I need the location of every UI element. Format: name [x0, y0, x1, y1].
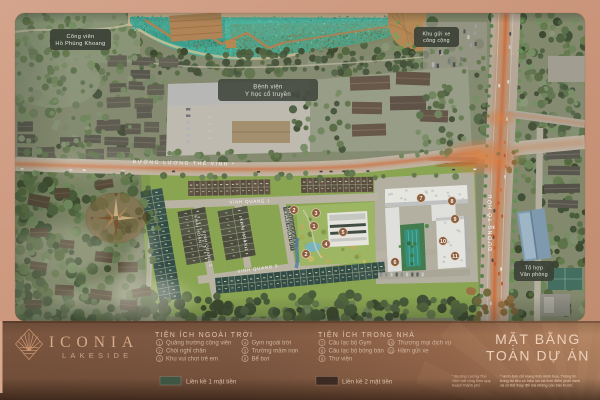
svg-text:Khu vui chơi trẻ em: Khu vui chơi trẻ em — [166, 357, 218, 363]
svg-text:hoạch thành phố: hoạch thành phố — [452, 383, 481, 387]
svg-text:TIỆN ÍCH TRONG NHÀ: TIỆN ÍCH TRONG NHÀ — [318, 330, 415, 339]
svg-text:và có thể thay đổi mà không cầ: và có thể thay đổi mà không cần báo trướ… — [500, 383, 573, 387]
svg-text:Câu lạc bộ bóng bàn: Câu lạc bộ bóng bàn — [329, 349, 384, 355]
svg-text:Trường mầm non: Trường mầm non — [252, 349, 299, 355]
svg-text:TOÀN DỰ ÁN: TOÀN DỰ ÁN — [486, 348, 590, 364]
svg-text:* Đường Lương Thế: * Đường Lương Thế — [452, 375, 487, 379]
svg-text:Liền kề 2 mặt tiền: Liền kề 2 mặt tiền — [342, 377, 393, 386]
svg-text:Liền kề 1 mặt tiền: Liền kề 1 mặt tiền — [186, 377, 237, 386]
svg-text:Vinh mở rộng theo quy: Vinh mở rộng theo quy — [452, 379, 491, 383]
svg-text:Thư viện: Thư viện — [329, 357, 353, 363]
svg-text:Gym ngoài trời: Gym ngoài trời — [252, 341, 292, 347]
svg-text:10: 10 — [389, 340, 394, 345]
svg-text:Chòi nghỉ chân: Chòi nghỉ chân — [166, 348, 206, 355]
svg-text:trong tài liệu có hiệu lực tại: trong tài liệu có hiệu lực tại thời điểm… — [500, 379, 580, 383]
svg-text:MẶT BẰNG: MẶT BẰNG — [495, 330, 581, 347]
svg-text:ICONIA: ICONIA — [49, 334, 139, 351]
svg-text:* Hình ảnh chỉ mang tính minh: * Hình ảnh chỉ mang tính minh họa. Thông… — [500, 375, 576, 379]
svg-text:TIỆN ÍCH NGOÀI TRỜI: TIỆN ÍCH NGOÀI TRỜI — [155, 330, 253, 339]
svg-text:LAKESIDE: LAKESIDE — [62, 351, 132, 360]
svg-text:Hầm gửi xe: Hầm gửi xe — [398, 348, 430, 355]
svg-text:Quảng trường công viên: Quảng trường công viên — [166, 341, 231, 347]
svg-text:11: 11 — [389, 348, 394, 353]
svg-text:Thương mại dịch vụ: Thương mại dịch vụ — [398, 341, 452, 347]
svg-text:Bể bơi: Bể bơi — [252, 356, 270, 363]
svg-text:Câu lạc bộ Gym: Câu lạc bộ Gym — [329, 341, 372, 347]
